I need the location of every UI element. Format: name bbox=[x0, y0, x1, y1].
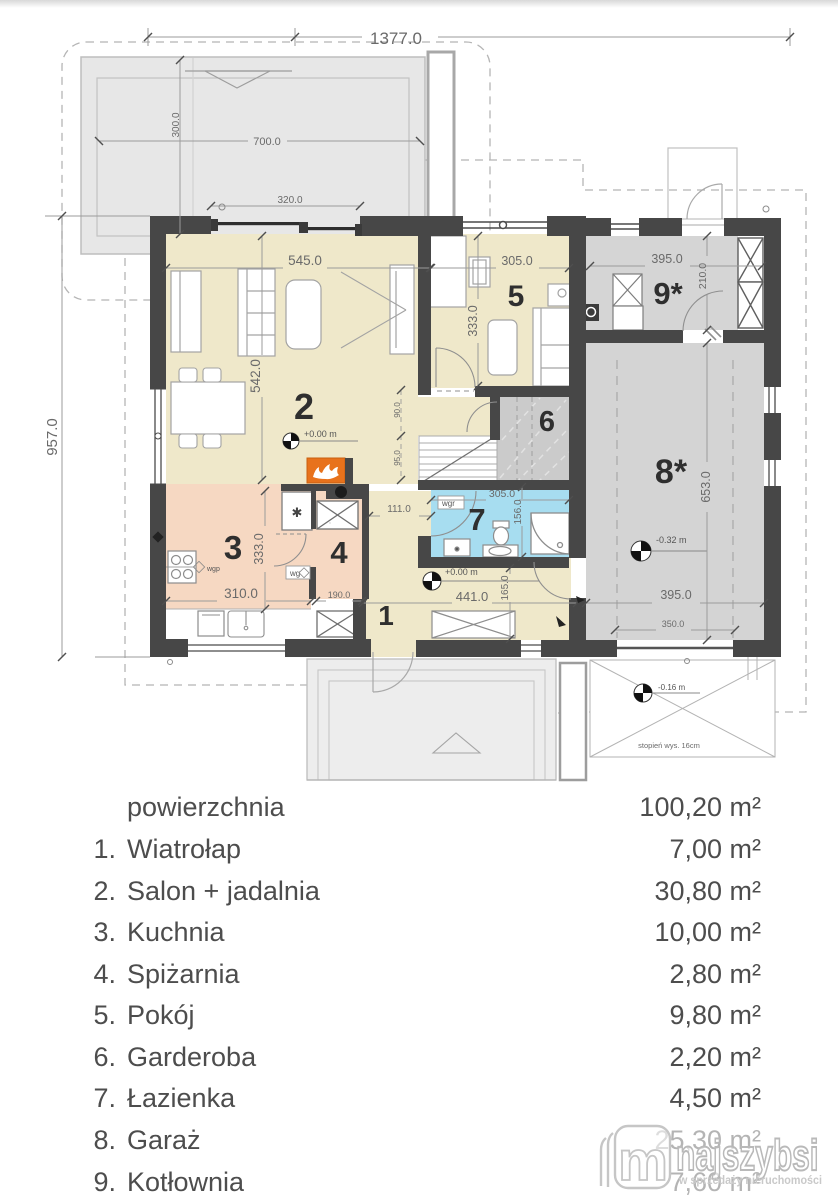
svg-text:10,00 m²: 10,00 m² bbox=[654, 917, 761, 947]
svg-text:320.0: 320.0 bbox=[277, 195, 302, 206]
svg-text:stopień wys. 16cm: stopień wys. 16cm bbox=[638, 741, 700, 750]
svg-text:2,80 m²: 2,80 m² bbox=[669, 959, 761, 989]
svg-text:6.: 6. bbox=[93, 1042, 116, 1072]
svg-text:2: 2 bbox=[294, 386, 314, 427]
svg-text:9.: 9. bbox=[93, 1167, 116, 1197]
svg-text:1: 1 bbox=[378, 600, 394, 631]
svg-text:Wiatrołap: Wiatrołap bbox=[127, 834, 241, 864]
svg-text:111.0: 111.0 bbox=[387, 504, 411, 515]
svg-text:4,50 m²: 4,50 m² bbox=[669, 1083, 761, 1113]
svg-text:957.0: 957.0 bbox=[44, 418, 61, 456]
svg-text:653.0: 653.0 bbox=[699, 471, 713, 502]
svg-text:4.: 4. bbox=[93, 959, 116, 989]
svg-text:7,00 m²: 7,00 m² bbox=[669, 834, 761, 864]
svg-text:1377.0: 1377.0 bbox=[370, 29, 422, 48]
svg-text:9,80 m²: 9,80 m² bbox=[669, 1000, 761, 1030]
svg-text:-0.16 m: -0.16 m bbox=[658, 683, 685, 692]
svg-text:2,20 m²: 2,20 m² bbox=[669, 1042, 761, 1072]
svg-text:1.: 1. bbox=[93, 834, 116, 864]
svg-text:Spiżarnia: Spiżarnia bbox=[127, 959, 241, 989]
svg-text:165.0: 165.0 bbox=[500, 575, 511, 600]
svg-text:+0.00 m: +0.00 m bbox=[445, 567, 478, 577]
svg-text:m: m bbox=[618, 1129, 668, 1192]
svg-text:9*: 9* bbox=[653, 276, 683, 311]
svg-text:300.0: 300.0 bbox=[171, 112, 182, 137]
svg-text:Łazienka: Łazienka bbox=[127, 1083, 236, 1113]
svg-text:90.0: 90.0 bbox=[393, 402, 402, 418]
svg-text:441.0: 441.0 bbox=[456, 589, 489, 604]
svg-text:95.0: 95.0 bbox=[393, 450, 402, 466]
svg-text:30,80 m²: 30,80 m² bbox=[654, 876, 761, 906]
svg-text:6: 6 bbox=[539, 406, 555, 438]
svg-text:powierzchnia: powierzchnia bbox=[127, 792, 286, 822]
svg-text:305.0: 305.0 bbox=[489, 488, 515, 500]
svg-text:190.0: 190.0 bbox=[328, 590, 351, 600]
svg-text:210.0: 210.0 bbox=[697, 263, 709, 289]
svg-text:100,20 m²: 100,20 m² bbox=[639, 792, 761, 822]
svg-text:-0.32 m: -0.32 m bbox=[656, 535, 687, 545]
svg-text:✱: ✱ bbox=[292, 505, 303, 520]
svg-text:8.: 8. bbox=[93, 1125, 116, 1155]
svg-text:305.0: 305.0 bbox=[501, 254, 532, 268]
svg-text:7.: 7. bbox=[93, 1083, 116, 1113]
svg-text:Garaż: Garaż bbox=[127, 1125, 201, 1155]
svg-text:Kuchnia: Kuchnia bbox=[127, 917, 226, 947]
svg-text:Kotłownia: Kotłownia bbox=[127, 1167, 245, 1197]
svg-text:542.0: 542.0 bbox=[248, 359, 263, 393]
svg-text:5: 5 bbox=[508, 280, 525, 313]
svg-text:Garderoba: Garderoba bbox=[127, 1042, 257, 1072]
svg-text:156.0: 156.0 bbox=[513, 499, 524, 524]
svg-text:2.: 2. bbox=[93, 876, 116, 906]
svg-text:395.0: 395.0 bbox=[651, 252, 682, 266]
svg-text:+0.00 m: +0.00 m bbox=[304, 429, 337, 439]
svg-text:5.: 5. bbox=[93, 1000, 116, 1030]
svg-text:Pokój: Pokój bbox=[127, 1000, 195, 1030]
svg-text:8*: 8* bbox=[655, 453, 688, 491]
svg-text:310.0: 310.0 bbox=[224, 586, 258, 601]
svg-text:395.0: 395.0 bbox=[660, 588, 691, 602]
svg-text:333.0: 333.0 bbox=[252, 533, 266, 564]
svg-text:wg: wg bbox=[289, 569, 300, 578]
svg-text:350.0: 350.0 bbox=[662, 619, 685, 629]
svg-text:333.0: 333.0 bbox=[466, 305, 480, 336]
svg-text:3.: 3. bbox=[93, 917, 116, 947]
svg-text:700.0: 700.0 bbox=[253, 136, 281, 148]
svg-text:3: 3 bbox=[224, 529, 242, 566]
svg-text:4: 4 bbox=[330, 535, 348, 570]
svg-text:7: 7 bbox=[468, 502, 485, 537]
svg-text:Salon + jadalnia: Salon + jadalnia bbox=[127, 876, 321, 906]
svg-text:545.0: 545.0 bbox=[288, 253, 322, 268]
svg-text:wgp: wgp bbox=[206, 566, 220, 573]
svg-text:w sprzedaży nieruchomości: w sprzedaży nieruchomości bbox=[678, 1173, 822, 1187]
